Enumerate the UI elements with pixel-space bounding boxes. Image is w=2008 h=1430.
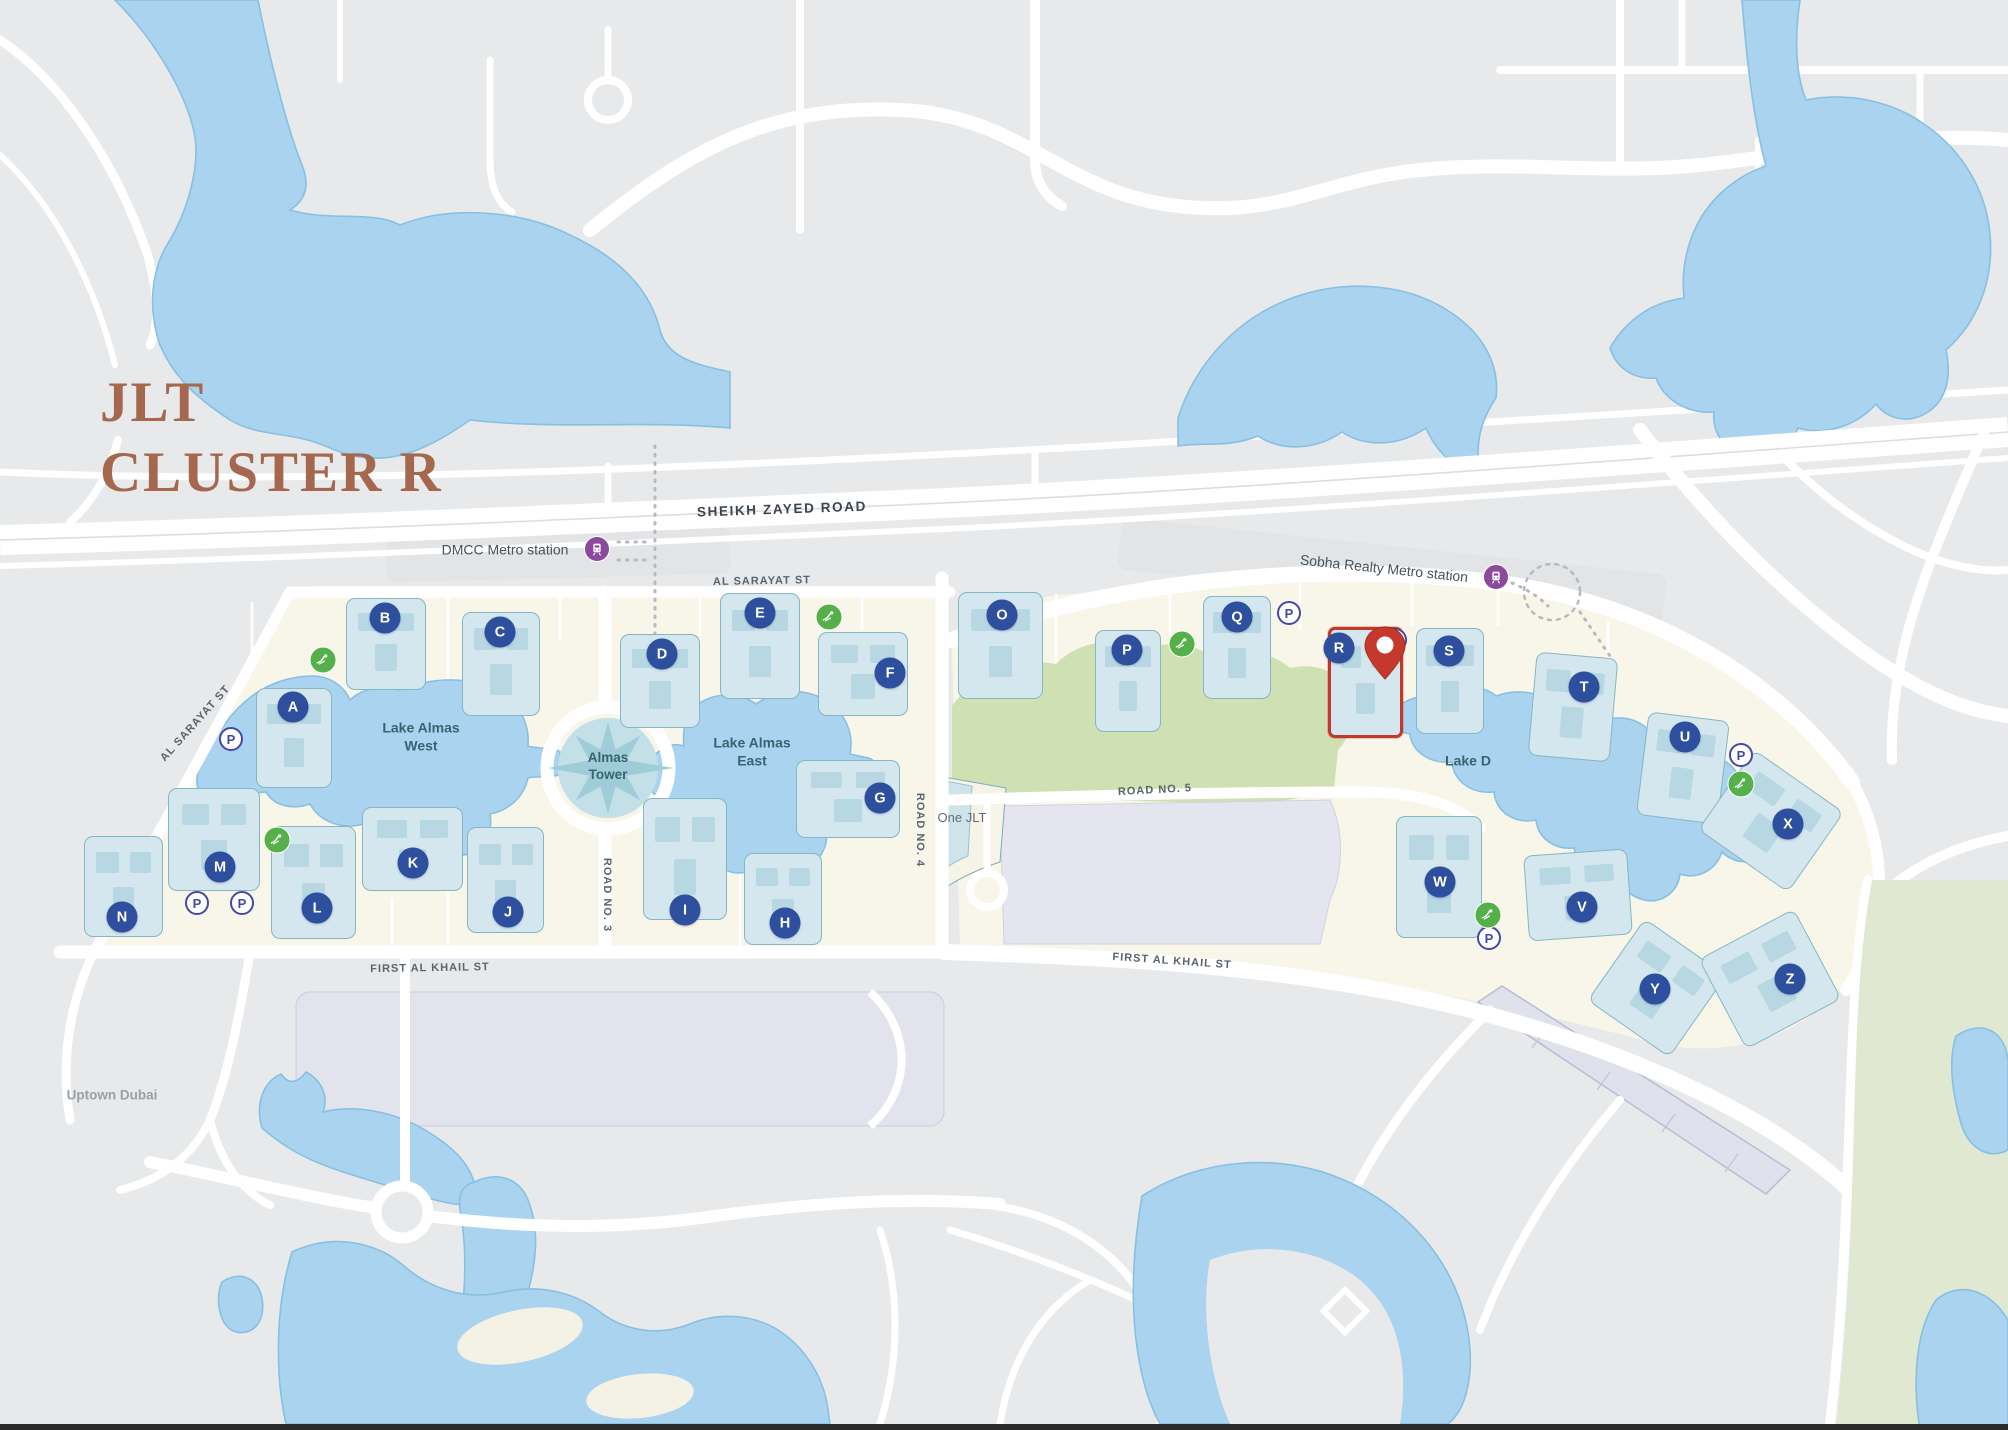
map-title: JLT CLUSTER R: [100, 368, 443, 508]
pin-layer: [0, 0, 2008, 1430]
map-title-line1: JLT: [100, 368, 443, 438]
map-title-line2: CLUSTER R: [100, 438, 443, 508]
location-pin-icon[interactable]: [1363, 625, 1407, 686]
jlt-cluster-r-map: ABCDEFGHIJKLMNOPQRSTUVWXYZPPPPPPP SHEIKH…: [0, 0, 2008, 1430]
